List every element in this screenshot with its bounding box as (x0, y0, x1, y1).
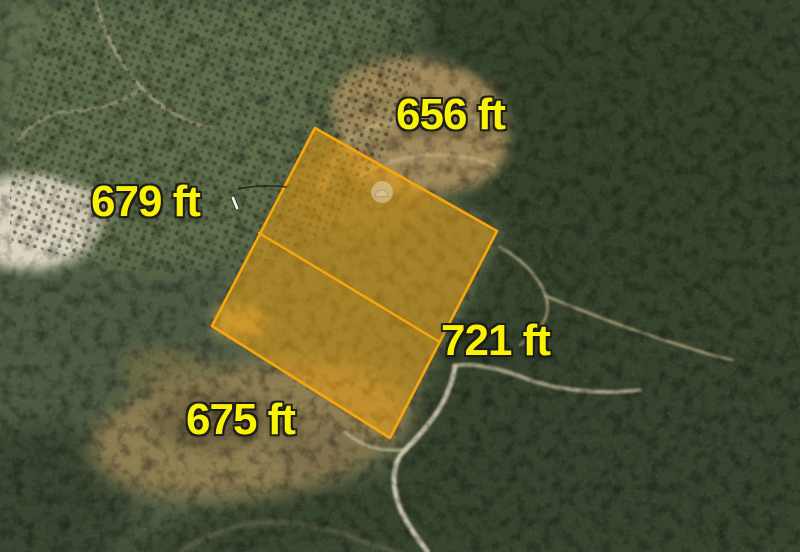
satellite-map[interactable]: 656 ft 679 ft 721 ft 675 ft (0, 0, 800, 552)
measurement-label-right: 721 ft (441, 319, 550, 363)
satellite-imagery (0, 0, 800, 552)
measurement-label-top: 656 ft (396, 93, 505, 137)
measurement-label-left: 679 ft (91, 180, 200, 224)
measurement-label-bottom: 675 ft (186, 398, 295, 442)
dome-structure-marker (371, 181, 393, 203)
